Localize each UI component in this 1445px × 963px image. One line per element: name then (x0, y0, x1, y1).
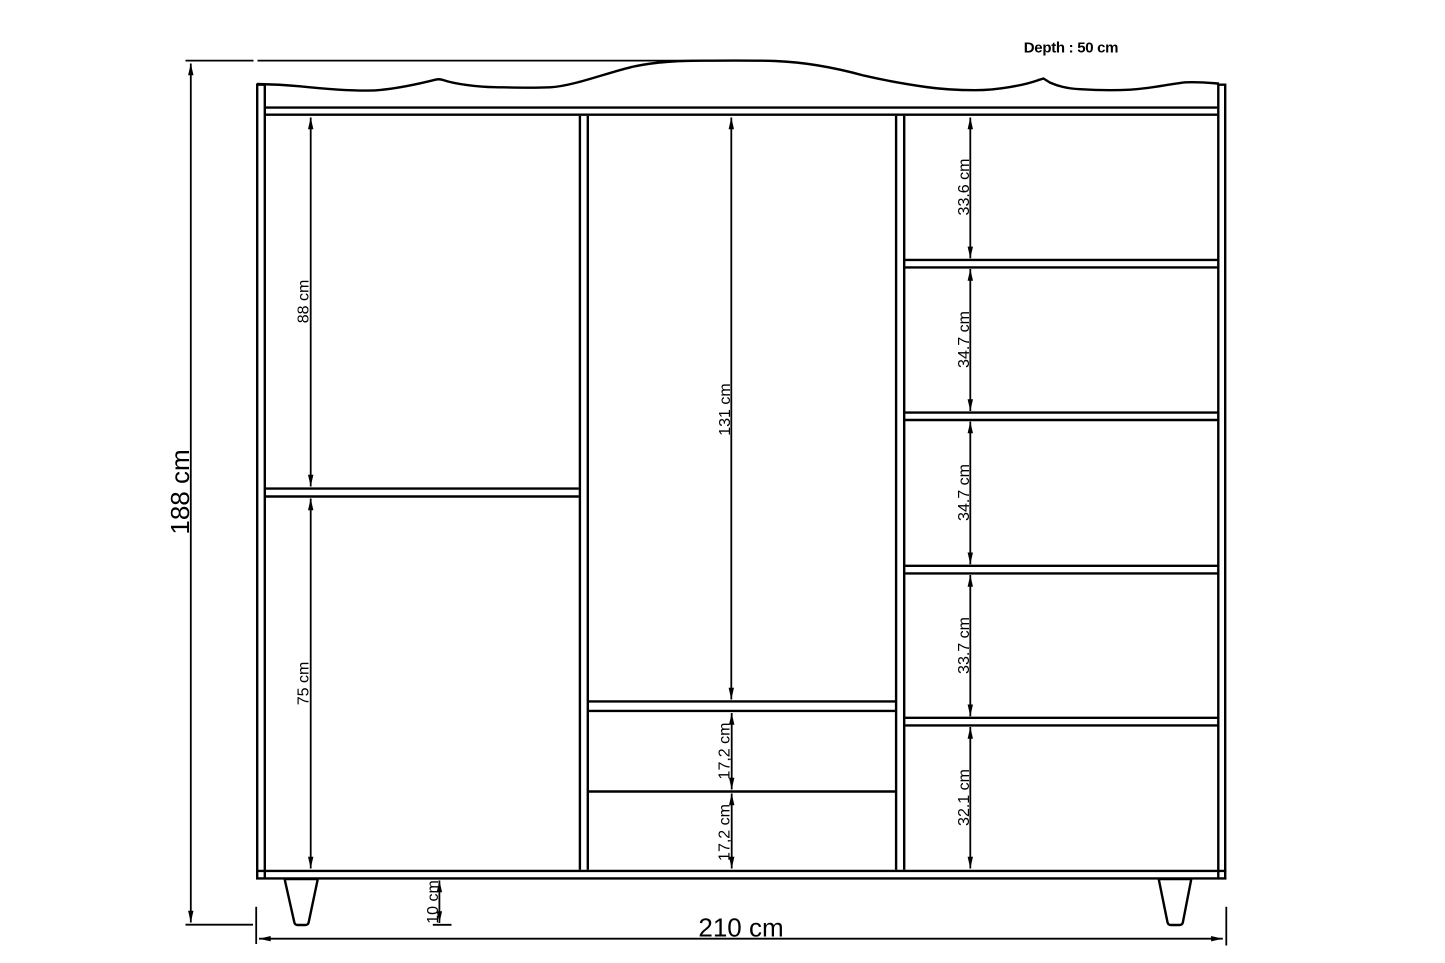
svg-text:188 cm: 188 cm (165, 449, 195, 534)
svg-text:10 cm: 10 cm (425, 880, 442, 924)
svg-text:88 cm: 88 cm (296, 280, 313, 324)
svg-text:34.7 cm: 34.7 cm (956, 311, 973, 368)
svg-text:131 cm: 131 cm (717, 383, 734, 435)
svg-text:210 cm: 210 cm (698, 912, 783, 942)
svg-text:33.7 cm: 33.7 cm (956, 617, 973, 674)
svg-text:34.7 cm: 34.7 cm (956, 464, 973, 521)
svg-text:75 cm: 75 cm (296, 662, 313, 706)
svg-text:32.1 cm: 32.1 cm (956, 769, 973, 826)
svg-text:33.6 cm: 33.6 cm (956, 159, 973, 216)
svg-text:17,2 cm: 17,2 cm (716, 723, 733, 780)
svg-text:17,2 cm: 17,2 cm (716, 804, 733, 861)
svg-text:Depth : 50 cm: Depth : 50 cm (1024, 40, 1118, 57)
